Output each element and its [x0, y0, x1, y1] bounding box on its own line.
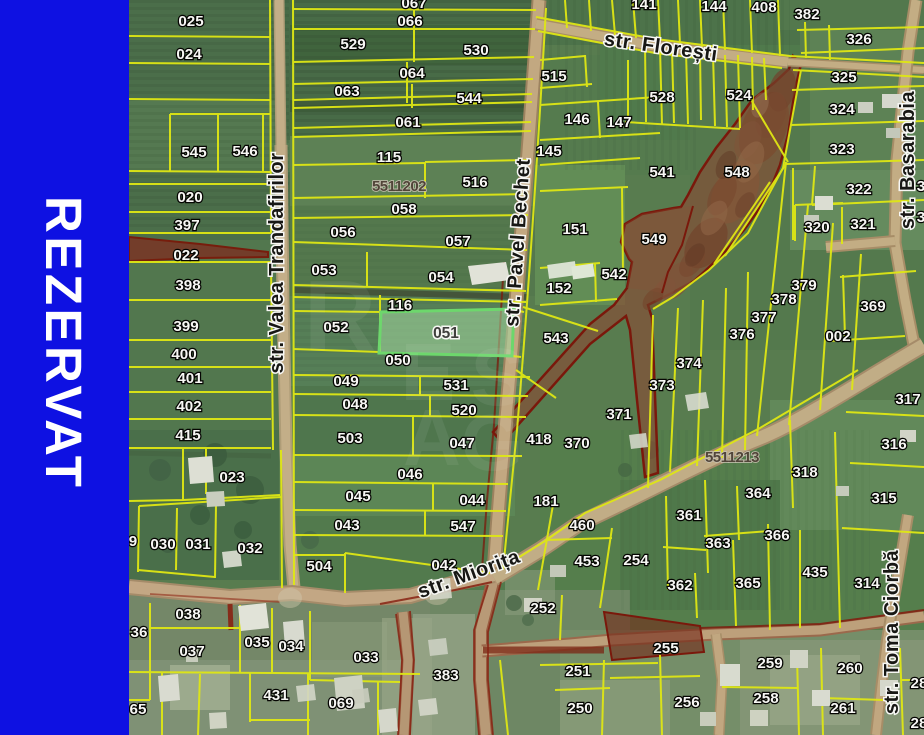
svg-text:REZERVAT: REZERVAT [35, 196, 92, 490]
